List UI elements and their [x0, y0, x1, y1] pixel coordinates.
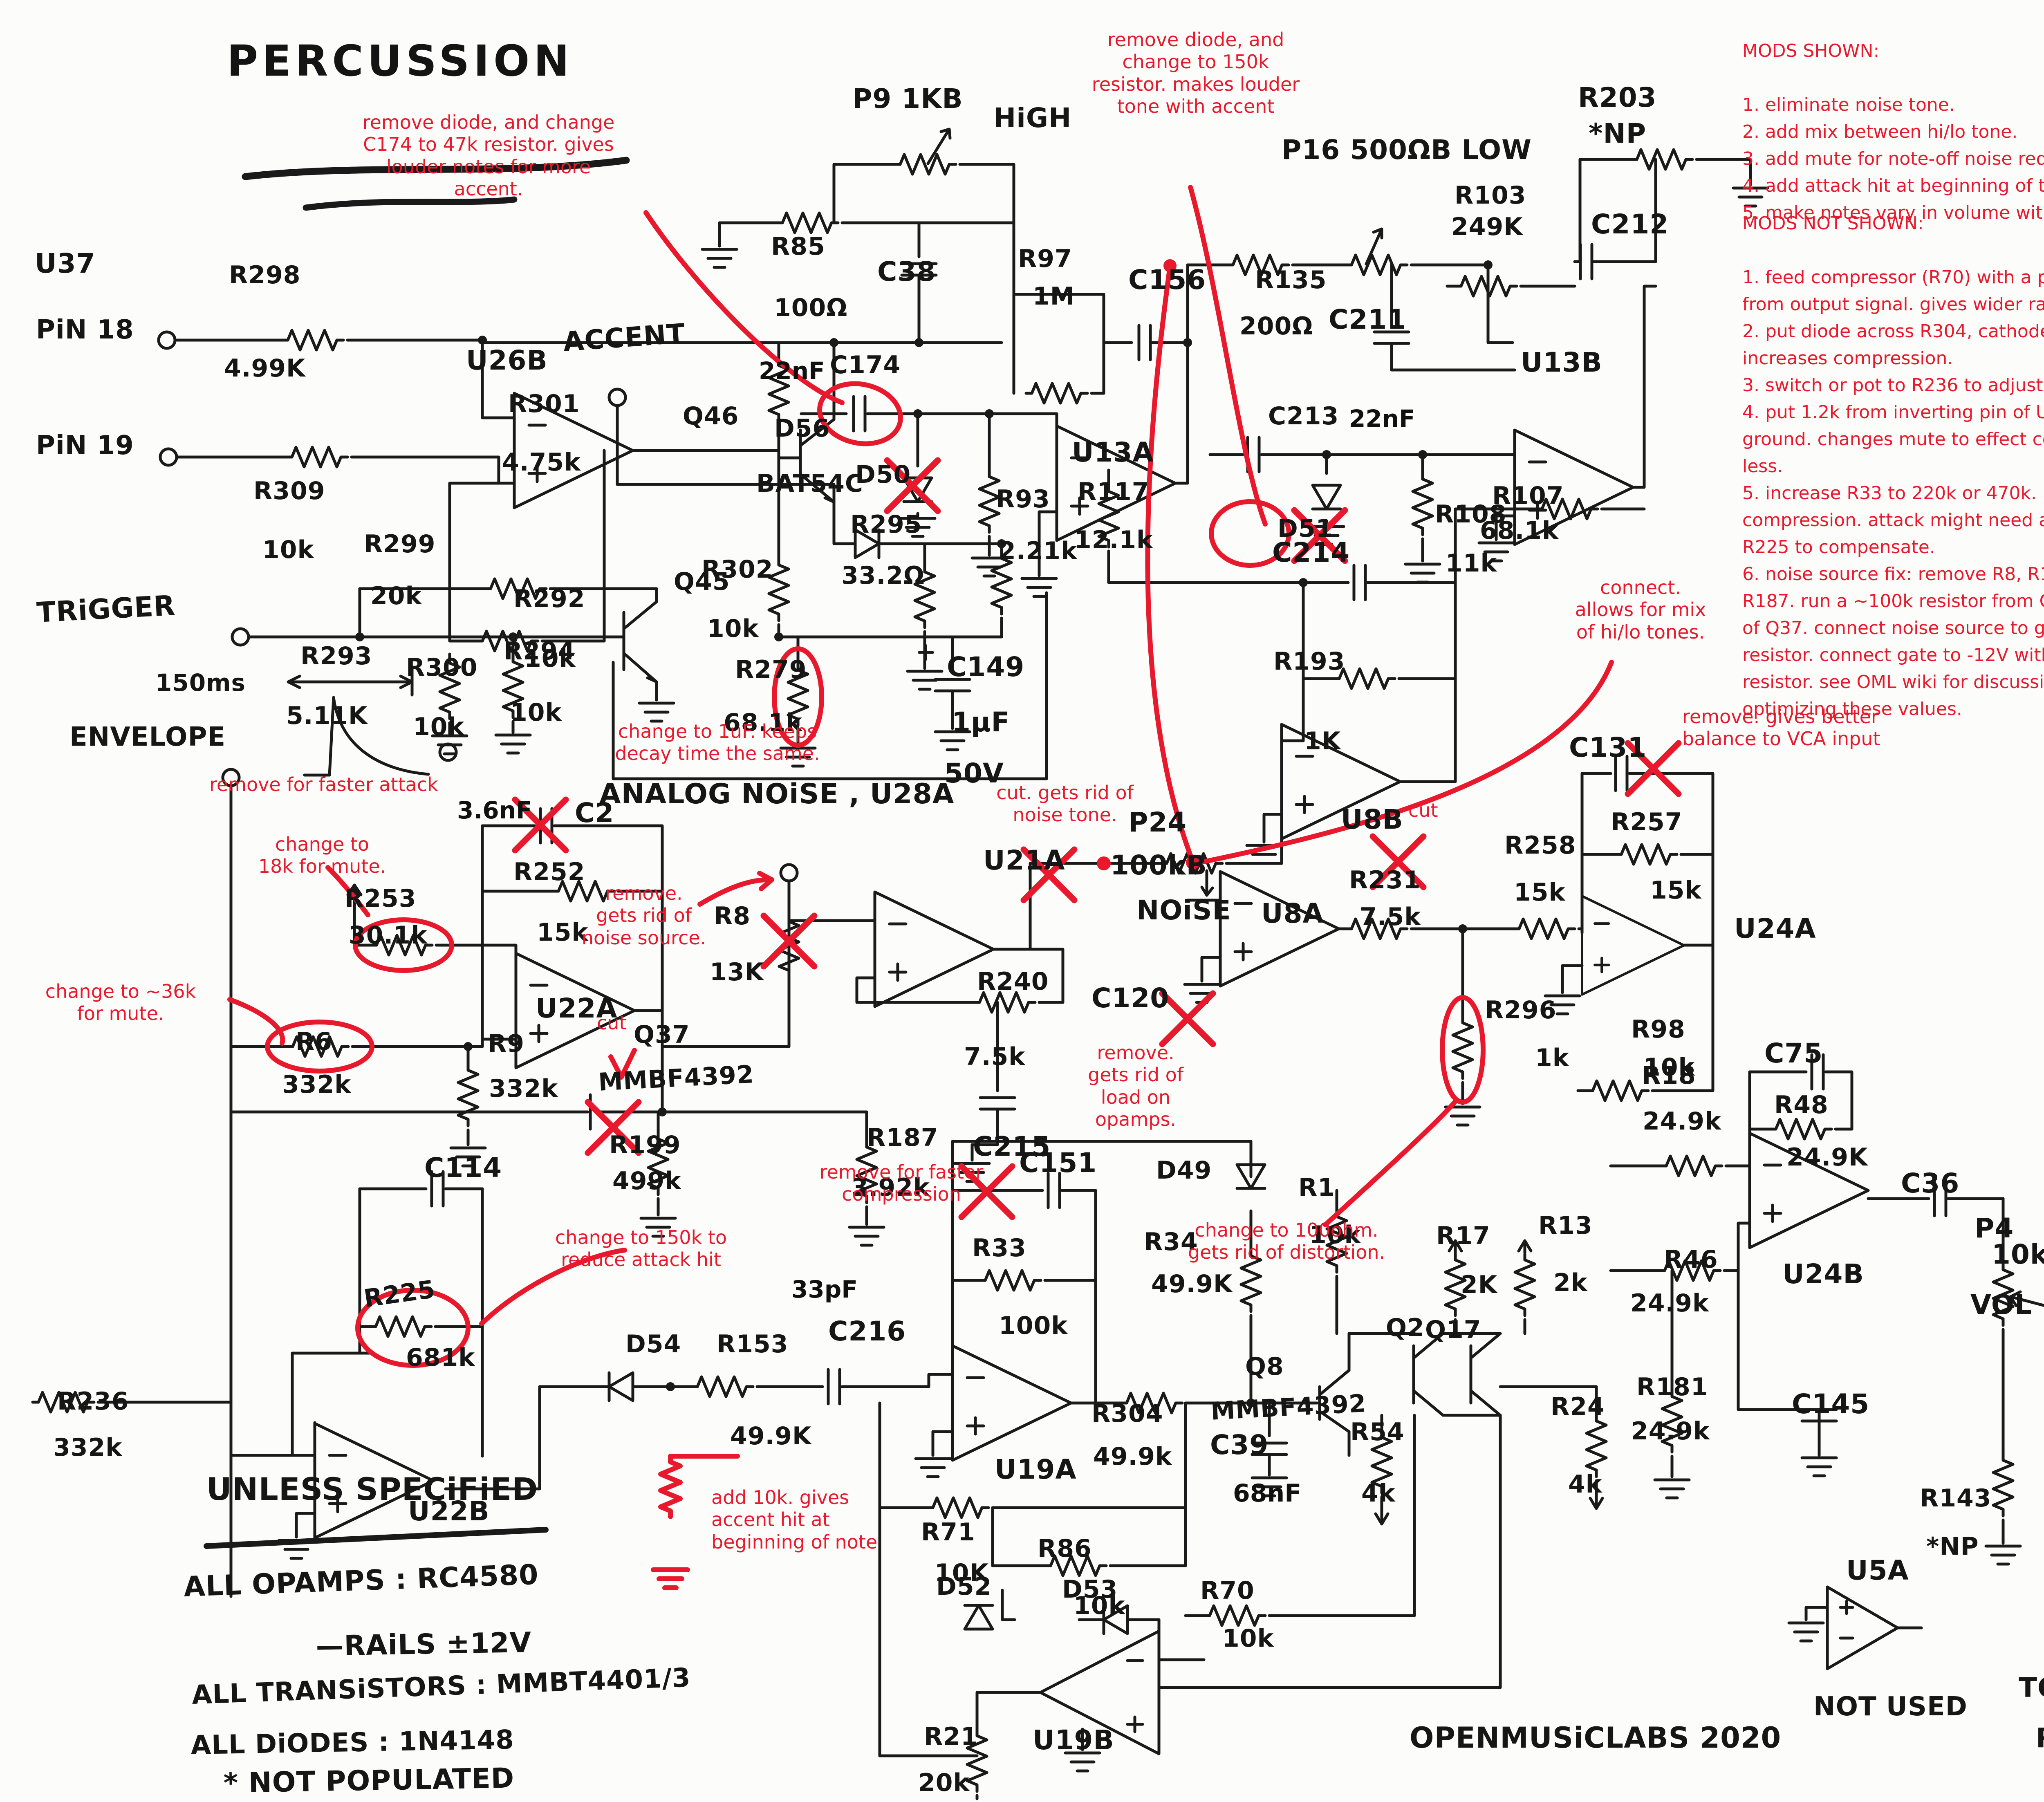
- r193: R193: [1273, 648, 1345, 675]
- pin-19: PiN 19: [36, 431, 134, 461]
- r296-val: 1k: [1535, 1044, 1569, 1072]
- note-c120: remove. gets rid of load on opamps.: [1066, 1042, 1205, 1130]
- r153: R153: [717, 1331, 788, 1358]
- r117-val: 12.1k: [1074, 527, 1153, 554]
- u26b: U26B: [466, 345, 548, 376]
- r9-val: 332k: [489, 1075, 558, 1103]
- r300-val: 10k: [413, 713, 464, 741]
- r93: R93: [996, 486, 1050, 513]
- u19b: U19B: [1033, 1725, 1114, 1755]
- sheet-title: PERCUSSION: [227, 36, 573, 86]
- c174-cap: 22nF: [759, 358, 825, 384]
- p4-val: 10kB: [1992, 1239, 2044, 1270]
- curve-r296-note: [1325, 1100, 1456, 1225]
- r33-val: 100k: [999, 1312, 1068, 1340]
- r103-val: 249K: [1451, 213, 1523, 241]
- r253: R253: [345, 885, 416, 912]
- c212: C212: [1591, 209, 1669, 240]
- analog-noise: ANALOG NOiSE , U28A: [599, 779, 954, 810]
- r33: R33: [972, 1235, 1026, 1262]
- r13: R13: [1538, 1212, 1593, 1239]
- r8-val: 13K: [710, 959, 764, 986]
- c149: C149: [947, 652, 1024, 682]
- r199: R199: [609, 1132, 681, 1159]
- note-r8: remove. gets rid of noise source.: [568, 882, 719, 949]
- to-mix: TO MiX: [2019, 1673, 2044, 1703]
- c2: C2: [575, 798, 614, 828]
- r71: R71: [921, 1519, 975, 1546]
- us-heading: UNLESS SPECiFiED: [206, 1472, 538, 1506]
- u24a: U24A: [1734, 914, 1816, 944]
- r143-np: *NP: [1926, 1533, 1979, 1560]
- r279: R279: [735, 656, 807, 684]
- r18-val: 24.9k: [1643, 1108, 1721, 1135]
- d53: D53: [1062, 1576, 1118, 1603]
- d56: D56: [774, 415, 830, 442]
- r24-val: 4k: [1568, 1471, 1602, 1498]
- r93-val: 2.21k: [999, 538, 1078, 565]
- r1: R1: [1298, 1174, 1335, 1201]
- d52: D52: [936, 1573, 992, 1600]
- c174: C174: [830, 352, 901, 379]
- r18: R18: [1642, 1062, 1696, 1089]
- schematic-sheet: PERCUSSION MODS SHOWN: 1. eliminate nois…: [0, 0, 2044, 1802]
- r84: R84: [2036, 1723, 2044, 1753]
- r143: R143: [1920, 1485, 1991, 1512]
- q2: Q2: [1386, 1314, 1425, 1342]
- r301-val: 4.75k: [502, 449, 581, 476]
- r9: R9: [488, 1030, 524, 1058]
- note-r6: change to ~36k for mute.: [33, 980, 208, 1025]
- c38: C38: [877, 257, 936, 287]
- note-c149: change to 1uF. keeps decay time the same…: [585, 720, 850, 765]
- note-c174: remove diode, and change C174 to 47k res…: [325, 111, 652, 200]
- u5a: U5A: [1846, 1555, 1909, 1586]
- r292: R292: [513, 585, 585, 613]
- r302: R302: [702, 556, 773, 583]
- d54: D54: [625, 1331, 681, 1358]
- r34-val: 49.9K: [1151, 1271, 1233, 1298]
- d49: D49: [1156, 1157, 1212, 1184]
- q37: Q37: [634, 1021, 690, 1049]
- c156: C156: [1128, 265, 1206, 295]
- r193-val: 1K: [1304, 728, 1341, 755]
- p16: P16 500ΩB LOW: [1282, 135, 1532, 165]
- r103: R103: [1455, 182, 1526, 209]
- pin-18: PiN 18: [36, 316, 134, 345]
- noise: NOiSE: [1136, 895, 1231, 926]
- u19a: U19A: [995, 1455, 1077, 1485]
- q46: Q46: [683, 403, 739, 430]
- credit: OPENMUSiCLABS 2020: [1410, 1722, 1781, 1754]
- red-gnd-add10k: [653, 1570, 688, 1588]
- r48-val: 24.9K: [1786, 1144, 1868, 1171]
- c211: C211: [1329, 305, 1406, 335]
- r231-val: 7.5k: [1360, 903, 1421, 931]
- r304: R304: [1091, 1400, 1163, 1428]
- c216-val: 33pF: [791, 1276, 858, 1303]
- us-diodes: ALL DiODES : 1N4148: [191, 1726, 514, 1760]
- r231: R231: [1349, 867, 1421, 894]
- us-rails: —RAiLS ±12V: [316, 1627, 532, 1662]
- envelope: ENVELOPE: [69, 723, 226, 752]
- r117: R117: [1078, 478, 1149, 506]
- r299: R299: [364, 531, 435, 558]
- mods-shown-heading: MODS SHOWN:: [1742, 38, 2044, 65]
- note-connect: connect. allows for mix of hi/lo tones.: [1561, 576, 1720, 643]
- r21: R21: [924, 1723, 978, 1750]
- r70: R70: [1200, 1577, 1255, 1605]
- r236: R236: [57, 1388, 129, 1415]
- r135: R135: [1255, 267, 1327, 294]
- c213-cap: 22nF: [1349, 406, 1415, 432]
- curve-u13a-to-p24: [1148, 267, 1193, 862]
- mods-not-shown-lines: 1. feed compressor (R70) with a pot or s…: [1742, 264, 2044, 723]
- r46-val: 24.9k: [1630, 1290, 1709, 1317]
- r86: R86: [1038, 1535, 1092, 1562]
- note-r225: change to 150k to reduce attack hit: [543, 1226, 739, 1271]
- c214: C214: [1272, 538, 1350, 568]
- r107-val: 68.1k: [1480, 517, 1559, 545]
- note-c2: remove for faster attack: [209, 773, 438, 796]
- d56-part: BAT54C: [756, 470, 863, 498]
- r225-val: 681k: [406, 1344, 475, 1372]
- r97: R97: [1018, 245, 1072, 273]
- r17-val: 2K: [1461, 1271, 1497, 1299]
- r240-val: 7.5k: [964, 1043, 1025, 1071]
- note-r296: change to 100ohm. gets rid of distortion…: [1170, 1219, 1403, 1264]
- c145: C145: [1792, 1389, 1869, 1419]
- c216: C216: [828, 1316, 906, 1347]
- r181-val: 24.9k: [1631, 1418, 1710, 1445]
- note-r253: change to 18k for mute.: [253, 833, 392, 878]
- c39: C39: [1210, 1430, 1269, 1460]
- c213: C213: [1268, 403, 1339, 430]
- r54-val: 4k: [1361, 1480, 1396, 1507]
- u24b: U24B: [1782, 1259, 1864, 1289]
- r309: R309: [253, 477, 325, 505]
- c39-val: 68nF: [1233, 1480, 1301, 1507]
- u37: U37: [35, 249, 95, 279]
- r97-val: 1M: [1033, 283, 1075, 310]
- note-c131: remove. gives better balance to VCA inpu…: [1682, 706, 1880, 750]
- p9: P9 1KB: [852, 84, 963, 114]
- p24-val: 100kB: [1110, 850, 1207, 881]
- r6: R6: [296, 1028, 332, 1056]
- r98: R98: [1631, 1016, 1685, 1043]
- note-u8b: cut: [1408, 799, 1438, 821]
- r181: R181: [1636, 1374, 1708, 1401]
- r199-val: 499k: [612, 1168, 681, 1195]
- r296: R296: [1485, 997, 1556, 1024]
- x-mark-c120: [1162, 993, 1213, 1044]
- r300: R300: [406, 654, 477, 681]
- r294-val: 10k: [510, 699, 562, 726]
- c131: C131: [1569, 733, 1647, 763]
- r46: R46: [1664, 1246, 1718, 1273]
- c151: C151: [1019, 1148, 1097, 1178]
- u8a: U8A: [1261, 899, 1324, 929]
- q8: Q8: [1245, 1353, 1284, 1381]
- not-used: NOT USED: [1813, 1692, 1968, 1722]
- r203-np: *NP: [1589, 119, 1646, 149]
- x-mark-r8: [764, 916, 814, 966]
- curve-note-to-c213: [1190, 187, 1265, 524]
- r203: R203: [1578, 83, 1657, 113]
- r302-val: 10k: [707, 615, 759, 643]
- r258-val: 15k: [1514, 879, 1565, 906]
- r292-val: 10k: [524, 645, 576, 672]
- c36: C36: [1901, 1168, 1959, 1199]
- c2-val: 3.6nF: [457, 797, 532, 824]
- u13a: U13A: [1072, 437, 1154, 468]
- r85: R85: [771, 233, 825, 260]
- c75: C75: [1764, 1038, 1823, 1069]
- c114: C114: [424, 1153, 502, 1183]
- r153-val: 49.9K: [730, 1423, 812, 1450]
- r295: R295: [850, 511, 922, 538]
- u13b: U13B: [1521, 347, 1602, 378]
- r257: R257: [1611, 809, 1682, 836]
- note-c213: remove diode, and change to 150k resisto…: [1030, 29, 1361, 117]
- u21a: U21A: [983, 845, 1065, 876]
- r135-val: 200Ω: [1239, 313, 1313, 340]
- us-np: * NOT POPULATED: [223, 1763, 515, 1800]
- r48: R48: [1774, 1092, 1829, 1119]
- r108-val: 11k: [1446, 550, 1497, 577]
- r54: R54: [1350, 1419, 1405, 1446]
- r298: R298: [229, 262, 300, 289]
- r240: R240: [977, 968, 1049, 995]
- note-c151: remove for faster compression: [809, 1161, 993, 1206]
- r187: R187: [867, 1124, 938, 1152]
- r295-val: 33.2Ω: [841, 562, 925, 589]
- mods-not-shown-block: MODS NOT SHOWN: 1. feed compressor (R70)…: [1742, 183, 2044, 750]
- q17: Q17: [1425, 1316, 1481, 1344]
- r107: R107: [1492, 482, 1564, 510]
- p4-vol: VOL: [1970, 1290, 2032, 1320]
- r85-val: 100Ω: [774, 294, 847, 322]
- c149-val: 1µF: [952, 707, 1010, 737]
- circle-r296: [1442, 997, 1483, 1102]
- r301: R301: [508, 390, 580, 418]
- r13-val: 2k: [1553, 1269, 1588, 1297]
- r236-val: 332k: [53, 1434, 122, 1461]
- d50: D50: [855, 461, 911, 489]
- note-q37: cut: [597, 1012, 626, 1034]
- r293: R293: [300, 643, 372, 670]
- r258: R258: [1504, 832, 1576, 859]
- r299-val: 20k: [370, 583, 422, 610]
- r6-val: 332k: [282, 1071, 351, 1098]
- note-u21a: cut. gets rid of noise tone.: [977, 782, 1153, 826]
- u8b: U8B: [1341, 805, 1403, 835]
- r24: R24: [1551, 1393, 1605, 1421]
- r21-val: 20k: [918, 1769, 970, 1797]
- r70-val: 10k: [1222, 1625, 1274, 1652]
- r298-val: 4.99K: [224, 355, 306, 382]
- r309-val: 10k: [262, 536, 314, 564]
- r17: R17: [1436, 1222, 1490, 1250]
- r253-val: 30.1k: [349, 922, 428, 949]
- c120: C120: [1091, 983, 1169, 1013]
- r304-val: 49.9k: [1093, 1443, 1172, 1470]
- mods-not-shown-heading: MODS NOT SHOWN:: [1742, 210, 2044, 237]
- r293-val: 5.11K: [286, 702, 368, 730]
- r257-val: 15k: [1650, 877, 1701, 904]
- timing-150ms: 150ms: [155, 670, 246, 696]
- note-add10k: add 10k. gives accent hit at beginning o…: [711, 1486, 877, 1553]
